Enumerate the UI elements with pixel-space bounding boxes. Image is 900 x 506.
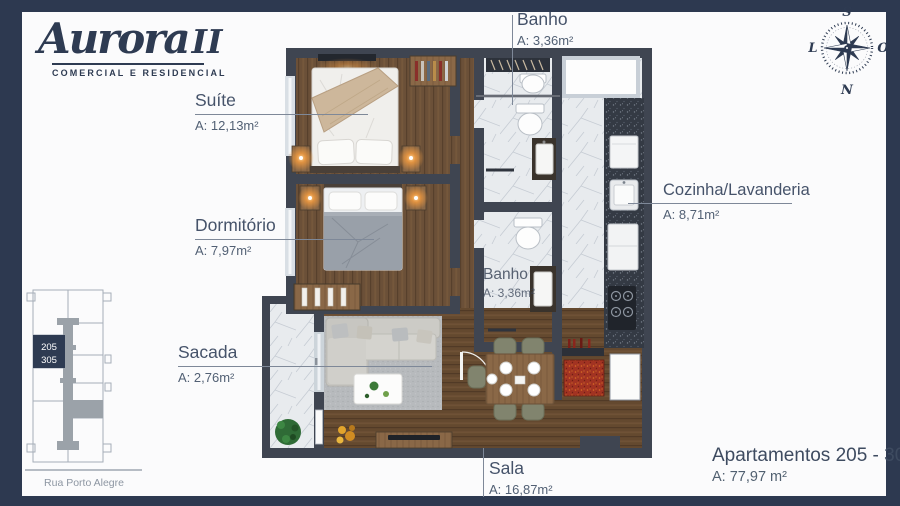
room-area: A: 12,13m² bbox=[195, 118, 368, 133]
room-area: A: 7,97m² bbox=[195, 243, 374, 258]
room-name: Cozinha/Lavanderia bbox=[663, 181, 810, 199]
cooktop bbox=[608, 286, 636, 330]
compass-letter-n: N bbox=[840, 83, 854, 98]
logo-wordmark: Aurora bbox=[38, 14, 189, 63]
dorm-wardrobe bbox=[294, 284, 360, 310]
room-name: Banho bbox=[483, 266, 535, 283]
leader-line bbox=[195, 114, 368, 115]
tv-console bbox=[376, 432, 452, 448]
logo-suffix: II bbox=[192, 22, 223, 61]
room-name: Suíte bbox=[195, 91, 368, 110]
room-area: A: 8,71m² bbox=[663, 207, 810, 222]
frame-bottom bbox=[0, 496, 900, 506]
leader-line bbox=[483, 448, 484, 497]
leader-line bbox=[195, 239, 374, 240]
leader-line bbox=[178, 366, 432, 367]
logo-tagline: COMERCIAL E RESIDENCIAL bbox=[52, 68, 227, 78]
compass-letter-l: L bbox=[807, 41, 817, 56]
dining-chair bbox=[522, 338, 544, 356]
door-leaf bbox=[460, 352, 463, 380]
kitchen-window bbox=[562, 56, 640, 98]
apartment-title: Apartamentos 205 - 305 bbox=[712, 445, 900, 467]
wall-panel bbox=[316, 410, 323, 444]
dining-chair bbox=[494, 402, 516, 420]
compass-letter-s: S bbox=[842, 5, 851, 20]
frame-left bbox=[0, 0, 22, 506]
room-label-sacada: Sacada A: 2,76m² bbox=[178, 343, 432, 385]
kitchen-sink bbox=[610, 180, 638, 210]
room-name: Banho bbox=[517, 10, 573, 29]
street-label: Rua Porto Alegre bbox=[44, 477, 124, 489]
frame-top bbox=[0, 0, 900, 12]
apartment-summary: Apartamentos 205 - 305 A: 77,97 m² bbox=[712, 445, 900, 485]
keyplan: 205 305 Rua Porto Alegre bbox=[20, 283, 148, 495]
room-label-banho-top: Banho A: 3,36m² bbox=[517, 10, 573, 48]
washing-machine bbox=[610, 136, 638, 168]
keyplan-unit-305: 305 bbox=[41, 355, 57, 366]
sacada-room bbox=[275, 419, 301, 445]
fridge bbox=[608, 224, 638, 270]
vanity bbox=[532, 138, 556, 180]
logo-underline bbox=[52, 63, 204, 65]
room-area: A: 16,87m² bbox=[489, 482, 553, 497]
dining-chair bbox=[494, 338, 516, 356]
toilet bbox=[516, 104, 544, 135]
logo: AuroraII COMERCIAL E RESIDENCIAL bbox=[38, 18, 227, 78]
room-name: Sacada bbox=[178, 343, 432, 362]
dining-chair bbox=[468, 366, 486, 388]
red-rug bbox=[564, 360, 604, 396]
apartment-area: A: 77,97 m² bbox=[712, 469, 900, 485]
room-area: A: 3,36m² bbox=[483, 286, 535, 300]
room-label-dormitorio: Dormitório A: 7,97m² bbox=[195, 216, 374, 258]
leader-line bbox=[512, 15, 513, 105]
entry-door bbox=[610, 354, 640, 400]
compass-rose: S O N L bbox=[795, 0, 900, 105]
leader-line bbox=[628, 203, 792, 204]
room-area: A: 2,76m² bbox=[178, 370, 432, 385]
keyplan-unit-205: 205 bbox=[41, 342, 57, 353]
room-label-sala: Sala A: 16,87m² bbox=[489, 459, 553, 497]
toilet bbox=[514, 218, 542, 249]
potted-plant bbox=[275, 419, 301, 445]
room-label-banho-inner: Banho A: 3,36m² bbox=[483, 266, 535, 300]
floorplan-page: AuroraII COMERCIAL E RESIDENCIAL S O N L bbox=[0, 0, 900, 506]
suite-wardrobe bbox=[410, 56, 456, 86]
room-name: Dormitório bbox=[195, 216, 374, 235]
room-label-suite: Suíte A: 12,13m² bbox=[195, 91, 368, 133]
room-label-cozinha: Cozinha/Lavanderia A: 8,71m² bbox=[663, 181, 810, 222]
compass-letter-o: O bbox=[877, 41, 889, 56]
room-area: A: 3,36m² bbox=[517, 33, 573, 48]
kitchen-shelf bbox=[562, 348, 604, 356]
room-name: Sala bbox=[489, 459, 553, 478]
dining-chair bbox=[522, 402, 544, 420]
